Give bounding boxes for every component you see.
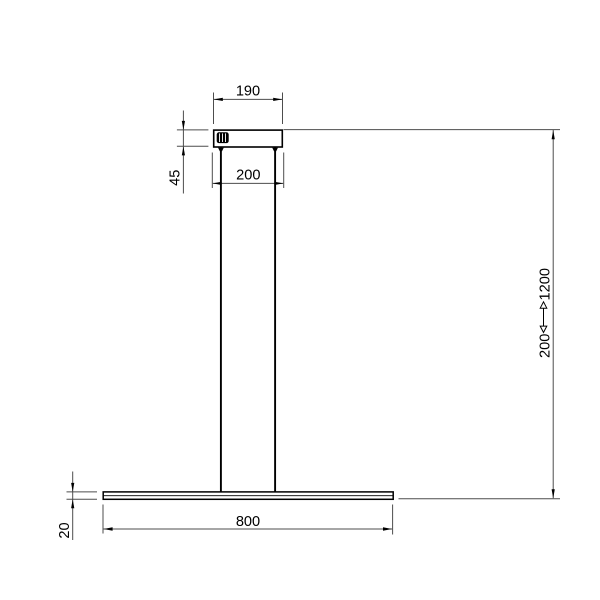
svg-text:200: 200 <box>538 334 554 358</box>
svg-text:190: 190 <box>236 84 260 100</box>
svg-text:200: 200 <box>236 168 260 184</box>
svg-text:1200: 1200 <box>538 268 554 300</box>
svg-text:45: 45 <box>167 170 183 186</box>
svg-text:20: 20 <box>57 522 73 538</box>
svg-text:800: 800 <box>236 514 260 530</box>
